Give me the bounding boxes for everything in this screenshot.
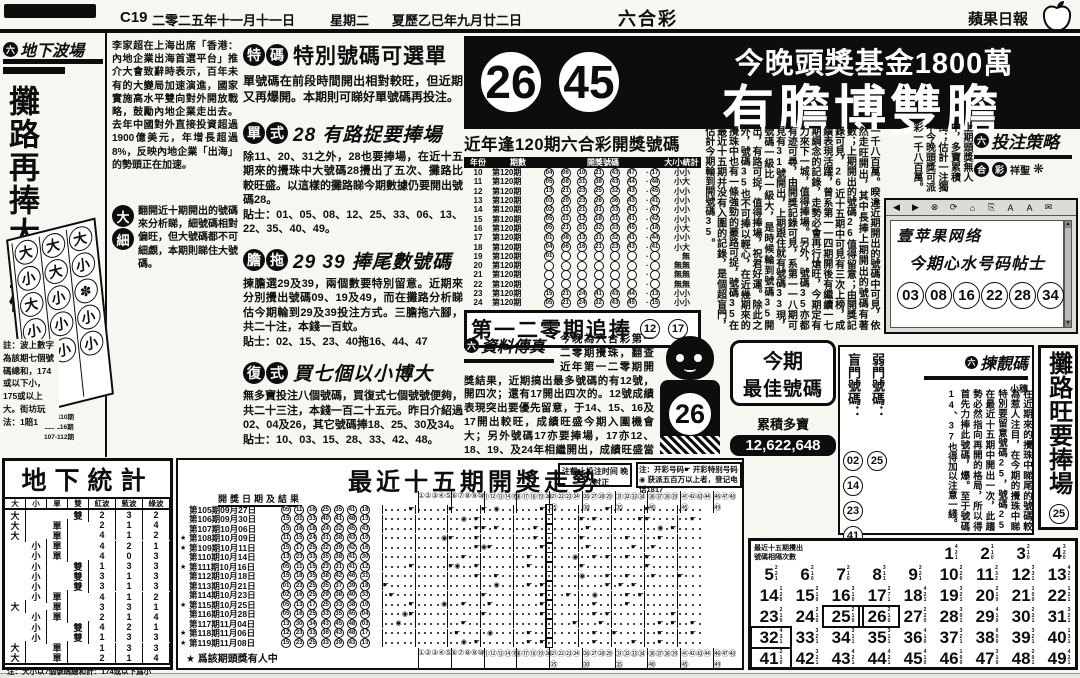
- walk-ball: 01: [281, 581, 291, 591]
- dot-mark: [522, 594, 524, 596]
- dot-mark: [627, 518, 629, 520]
- forward-icon[interactable]: ▶: [907, 201, 924, 214]
- walk-ball: 45: [347, 609, 357, 619]
- freq-count: 210: [847, 566, 850, 583]
- dot-mark: [385, 632, 387, 634]
- dot-mark: [502, 613, 504, 615]
- walk-balls: 05162533354504: [281, 609, 378, 619]
- freq-cell: 21100: [1005, 587, 1041, 604]
- dot-mark: [647, 623, 649, 625]
- multiple-body: 無多寶投注八個號碼，買復式七個號號便夠，共二十三注，本錢一百二十五元。昨日介紹過…: [243, 389, 463, 433]
- board-cell: 大: [40, 231, 66, 261]
- walk-ball: 36: [321, 628, 331, 638]
- banker-body: 揀膽選29及39，兩個數要特別留意。近期來分別攪出號碼09、19及49，而在攤路…: [243, 277, 463, 335]
- dot-mark: [685, 585, 687, 587]
- freq-count: 321: [960, 629, 963, 646]
- freq-number: 15: [796, 587, 815, 604]
- dot-mark: [666, 623, 668, 625]
- walk-special-ball: 33: [360, 590, 370, 600]
- dot-mark: [535, 518, 537, 520]
- dot-mark: [685, 518, 687, 520]
- home-icon[interactable]: ⌂: [964, 201, 981, 214]
- underground-header-cell: 雙: [68, 498, 89, 509]
- walk-ball: 05: [281, 505, 291, 515]
- section-multiple: 復式 買七個以小博大 無多寶投注八個號碼，買復式七個號號便夠，共二十三注，本錢一…: [243, 359, 463, 447]
- dot-mark: [640, 556, 642, 558]
- freq-cell: 38000: [969, 629, 1005, 646]
- dot-mark: [443, 642, 445, 644]
- dot-mark: [666, 547, 668, 549]
- dot-mark: [600, 556, 602, 558]
- dot-mark: [450, 613, 452, 615]
- dot-mark: [614, 613, 616, 615]
- walk-dot-grid: ☛◉☛☛☛☛☛: [382, 600, 703, 609]
- dot-mark: [496, 642, 498, 644]
- dot-mark: [561, 585, 563, 587]
- freq-number: 23: [760, 608, 779, 625]
- walk-ball: 30: [294, 619, 304, 629]
- freq-cell: 2110: [969, 545, 1005, 562]
- dot-mark: [535, 575, 537, 577]
- dot-mark: [509, 585, 511, 587]
- dot-mark: [456, 623, 458, 625]
- dot-mark: [404, 518, 406, 520]
- dot-mark: [418, 528, 420, 530]
- dot-mark: [489, 613, 491, 615]
- dot-mark: [620, 594, 622, 596]
- freq-number: 4: [1052, 545, 1061, 562]
- font-large-icon[interactable]: A: [1002, 201, 1019, 214]
- freq-cell: 29410: [969, 608, 1005, 625]
- dot-mark: [430, 547, 432, 549]
- walk-ball: 05: [281, 562, 291, 572]
- dot-mark: [640, 623, 642, 625]
- dot-mark: [469, 518, 471, 520]
- dot-mark: [672, 642, 674, 644]
- scroll-down-arrow[interactable]: ▼: [1065, 320, 1071, 327]
- dot-mark: [476, 623, 478, 625]
- freq-cell: 5221: [753, 566, 789, 583]
- multiple-badge: 復式: [243, 362, 288, 384]
- freq-number: 38: [976, 629, 995, 646]
- dot-mark: [502, 566, 504, 568]
- walk-ball: 38: [347, 600, 357, 610]
- refresh-icon[interactable]: ⟳: [945, 201, 962, 214]
- dot-mark: [699, 518, 701, 520]
- freq-cell: 11232: [969, 566, 1005, 583]
- dot-mark: [541, 528, 543, 530]
- dot-mark: [535, 613, 537, 615]
- walk-ball: 39: [334, 638, 344, 648]
- dot-mark: [561, 604, 563, 606]
- dot-mark: [568, 518, 570, 520]
- dot-mark: [581, 613, 583, 615]
- dot-mark: [699, 566, 701, 568]
- freq-count: 232: [995, 566, 998, 583]
- dot-mark: [522, 556, 524, 558]
- dot-mark: [437, 566, 439, 568]
- back-icon[interactable]: ◀: [888, 201, 905, 214]
- dot-mark: [653, 509, 655, 511]
- freq-count: 221: [1032, 608, 1035, 625]
- walk-dot-grid: ☛☛◉☛☛☛☛: [382, 572, 703, 581]
- walk-ball: 40: [321, 514, 331, 524]
- dot-mark: [469, 642, 471, 644]
- freq-count: 421: [1068, 566, 1071, 583]
- dot-mark: [653, 537, 655, 539]
- dot-mark: [456, 509, 458, 511]
- dot-mark: [568, 528, 570, 530]
- walk-cell: [696, 581, 703, 590]
- dot-mark: [561, 623, 563, 625]
- walk-balls: 15313340414813: [281, 514, 378, 524]
- dot-mark: [554, 547, 556, 549]
- freq-number: 35: [868, 629, 887, 646]
- dot-mark: [627, 566, 629, 568]
- dot-mark: [469, 613, 471, 615]
- draw120-year: 21: [464, 270, 492, 279]
- underground-row: 大雙232: [5, 510, 170, 520]
- freq-count: 100: [1032, 587, 1035, 604]
- draw120-title: 近年逢120期六合彩開獎號碼: [464, 131, 701, 155]
- dot-mark: [502, 528, 504, 530]
- dot-mark: [653, 604, 655, 606]
- single-tips: 貼士：01、05、08、12、25、33、06、13、22、35、40、49。: [243, 208, 463, 237]
- underground-row: 小單412: [5, 592, 170, 602]
- walk-ball: 25: [307, 638, 317, 648]
- dot-mark: [535, 632, 537, 634]
- dot-mark: [443, 613, 445, 615]
- underground-cell: 1: [116, 520, 143, 530]
- walk-cell: [696, 524, 703, 533]
- underground-row: 小雙133: [5, 632, 170, 642]
- dot-mark: [410, 528, 412, 530]
- freq-count: 220: [960, 566, 963, 583]
- dot-mark: [385, 594, 387, 596]
- dot-mark: [574, 575, 576, 577]
- dot-mark: [685, 556, 687, 558]
- walk-cell: [696, 505, 703, 514]
- walk-special-ball: 10: [360, 533, 370, 543]
- scroll-up-arrow[interactable]: ▲: [1065, 221, 1071, 228]
- dot-mark: [522, 528, 524, 530]
- freq-number: 18: [904, 587, 923, 604]
- dot-mark: [633, 528, 635, 530]
- dot-mark: [614, 509, 616, 511]
- special-title: 特別號碼可選單: [293, 40, 447, 70]
- web-numbers: 03 08 16 22 28 34: [897, 282, 1057, 309]
- freq-cell: 41210: [753, 650, 789, 667]
- dot-mark: [594, 547, 596, 549]
- dot-mark: [418, 547, 420, 549]
- walk-ball: 15: [307, 562, 317, 572]
- walk-ball: 45: [334, 619, 344, 629]
- dot-mark: [561, 537, 563, 539]
- freq-number: 41: [760, 650, 779, 667]
- dot-mark: [568, 566, 570, 568]
- tips-column: 特碼 特別號碼可選單 單號碼在前段時間開出相對較旺，但近期又再爆開。本期則可睇好…: [243, 40, 463, 456]
- walk-star: ★: [180, 601, 189, 609]
- freq-cell: 46100: [933, 650, 969, 667]
- dot-mark: [594, 509, 596, 511]
- underground-cell: 2: [89, 653, 116, 663]
- draw120-year: 17: [464, 233, 492, 242]
- walk-ball: 38: [334, 533, 344, 543]
- freq-number: 20: [976, 587, 995, 604]
- dot-mark: [496, 594, 498, 596]
- dot-mark: [548, 623, 550, 625]
- dot-mark: [489, 537, 491, 539]
- dot-mark: [404, 528, 406, 530]
- dot-mark: [561, 547, 563, 549]
- dot-mark: [581, 623, 583, 625]
- underground-cell: 3: [116, 561, 143, 571]
- dot-mark: [548, 604, 550, 606]
- dot-mark: [554, 613, 556, 615]
- dot-mark: [456, 575, 458, 577]
- dot-mark: [614, 575, 616, 577]
- dot-mark: [397, 556, 399, 558]
- blind-balls: 02 14 23 41: [843, 451, 863, 546]
- stop-icon[interactable]: ⊗: [926, 201, 943, 214]
- mail-icon[interactable]: ✉: [1040, 201, 1057, 214]
- dot-mark: [535, 642, 537, 644]
- dot-mark: [516, 594, 518, 596]
- dot-mark: [548, 594, 550, 596]
- dot-mark: [397, 642, 399, 644]
- walk-ball: 15: [281, 571, 291, 581]
- walk-ball: 33: [321, 609, 331, 619]
- walk-ball: 42: [334, 571, 344, 581]
- walk-special-ball: 13: [360, 638, 370, 648]
- dot-mark: [685, 509, 687, 511]
- blind-ball: 23: [843, 501, 863, 521]
- dot-mark: [548, 547, 550, 549]
- dot-mark: [476, 613, 478, 615]
- dot-mark: [522, 642, 524, 644]
- dot-mark: [516, 518, 518, 520]
- freq-cell: 19321: [933, 587, 969, 604]
- fax-logo-strip: [464, 359, 554, 363]
- walk-note2: 注截止投注时间 晚上7时正: [558, 463, 632, 487]
- single-badge: 單式: [243, 122, 288, 144]
- dot-mark: [554, 642, 556, 644]
- strategy-sub1: 合: [974, 162, 989, 177]
- dot-mark: [666, 604, 668, 606]
- dot-mark: [672, 632, 674, 634]
- strategy-text: 投注策略: [991, 128, 1059, 153]
- dot-mark: [614, 537, 616, 539]
- dot-mark: [647, 585, 649, 587]
- freq-count: 321: [960, 587, 963, 604]
- dot-mark: [620, 556, 622, 558]
- freq-cell: 34311: [825, 629, 861, 646]
- dot-mark: [672, 556, 674, 558]
- dot-mark: [581, 528, 583, 530]
- dot-mark: [424, 566, 426, 568]
- walk-ball: 13: [281, 619, 291, 629]
- freq-count: 311: [852, 629, 855, 646]
- underground-cell: 2: [89, 520, 116, 530]
- underground-cell: 3: [116, 602, 143, 612]
- underground-cell: 4: [143, 612, 170, 622]
- walk-balls: 05111625354118: [281, 505, 378, 515]
- dot-mark: [410, 632, 412, 634]
- dot-mark: [516, 604, 518, 606]
- dot-mark: [410, 585, 412, 587]
- boy-eye-right: [694, 354, 702, 362]
- dot-mark: [672, 604, 674, 606]
- dot-mark: [430, 509, 432, 511]
- dot-mark: [528, 518, 530, 520]
- freq-cell: 28301: [933, 608, 969, 625]
- freq-cell: 7210: [825, 566, 861, 583]
- freq-number: 26: [868, 608, 887, 625]
- dot-mark: [607, 528, 609, 530]
- dot-mark: [659, 575, 661, 577]
- walk-cell: [696, 515, 703, 524]
- dot-mark: [397, 566, 399, 568]
- dot-mark: [679, 594, 681, 596]
- dot-mark: [430, 585, 432, 587]
- dot-mark: [659, 556, 661, 558]
- dot-mark: [679, 613, 681, 615]
- dot-mark: [443, 509, 445, 511]
- dot-mark: [391, 575, 393, 577]
- scrollbar[interactable]: ▲ ▼: [1064, 220, 1072, 328]
- blind-ball: 14: [843, 476, 863, 496]
- dot-mark: [666, 575, 668, 577]
- boy-smile: [684, 366, 696, 372]
- dot-mark: [463, 632, 465, 634]
- dot-mark: [581, 547, 583, 549]
- dot-mark: [391, 509, 393, 511]
- dot-mark: [502, 509, 504, 511]
- freq-count: 201: [1032, 650, 1035, 667]
- font-small-icon[interactable]: A: [1021, 201, 1038, 214]
- dot-mark: [450, 594, 452, 596]
- board-cell: 小: [70, 250, 96, 280]
- walk-ball: 38: [321, 571, 331, 581]
- draw-ball: 24: [577, 298, 587, 308]
- dot-mark: [443, 632, 445, 634]
- dot-mark: [640, 604, 642, 606]
- fax-logo-text: 資料傳真: [481, 333, 545, 357]
- freq-cell: 45410: [897, 650, 933, 667]
- dot-mark: [418, 575, 420, 577]
- dot-mark: [581, 594, 583, 596]
- dot-mark: [568, 585, 570, 587]
- blind-label: 盲門號碼：: [844, 353, 863, 449]
- dot-mark: [620, 575, 622, 577]
- dot-mark: [633, 537, 635, 539]
- draw120-rows: 10第120期040610214347·17小小11第120期050831384…: [464, 168, 701, 307]
- dot-mark: [568, 547, 570, 549]
- freq-number: 19: [940, 587, 959, 604]
- freq-number: 25: [832, 608, 851, 625]
- dot-mark: [627, 632, 629, 634]
- walk-group-label: ①②③④⑤: [418, 648, 451, 670]
- dot-mark: [679, 566, 681, 568]
- dot-mark: [410, 537, 412, 539]
- dot-mark: [456, 642, 458, 644]
- freq-count: 221: [919, 566, 922, 583]
- dot-mark: [574, 518, 576, 520]
- underground-cell: 4: [89, 551, 116, 561]
- freq-number: 37: [940, 629, 959, 646]
- dot-mark: [397, 537, 399, 539]
- dot-mark: [443, 623, 445, 625]
- board-cell: 大: [18, 290, 44, 320]
- dot-mark: [699, 623, 701, 625]
- dot-mark: [554, 594, 556, 596]
- freq-row: 1421211032104320: [753, 543, 1077, 564]
- dot-mark: [627, 509, 629, 511]
- freq-number: 39: [1012, 629, 1031, 646]
- dot-mark: [404, 547, 406, 549]
- dot-mark: [430, 556, 432, 558]
- dot-mark: [456, 613, 458, 615]
- dot-mark: [535, 566, 537, 568]
- freq-count: 220: [924, 608, 927, 625]
- freq-cell: 40131: [1041, 629, 1077, 646]
- dot-mark: [647, 528, 649, 530]
- walk-ball: 02: [281, 590, 291, 600]
- freq-count: 421: [1068, 650, 1071, 667]
- walk-note1: 注：开彩号码☛ 开彩特别号码◉ 获派五百万以上者，登记电话1817: [636, 462, 742, 488]
- dot-mark: [502, 537, 504, 539]
- dot-mark: [535, 585, 537, 587]
- dot-mark: [516, 585, 518, 587]
- freq-cell: 3210: [1005, 545, 1041, 562]
- print-icon[interactable]: ⎘: [983, 201, 1000, 214]
- walk-dot-grid: ☛◉☛☛☛☛☛: [382, 629, 703, 638]
- walk-star: ★: [180, 563, 189, 571]
- web-title: 今期心水号码帖士: [909, 250, 1057, 274]
- dot-mark: [509, 623, 511, 625]
- walk-ball: 35: [321, 552, 331, 562]
- dot-mark: [587, 566, 589, 568]
- walk-ball: 24: [321, 524, 331, 534]
- dot-mark: [404, 623, 406, 625]
- dot-mark: [410, 518, 412, 520]
- dot-mark: [541, 566, 543, 568]
- dot-mark: [469, 585, 471, 587]
- freq-cell: 9221: [897, 566, 933, 583]
- freq-count: 410: [924, 629, 927, 646]
- dot-mark: [594, 575, 596, 577]
- dot-mark: [502, 642, 504, 644]
- dot-mark: [424, 537, 426, 539]
- dot-mark: [443, 594, 445, 596]
- dot-mark: [659, 604, 661, 606]
- dot-mark: [672, 585, 674, 587]
- walk-ball: 16: [294, 590, 304, 600]
- fan-paragraph: 翻開近十期開出的號碼來分析睇，細號碼相對偏旺，但大號碼都不可細覷，本期則睇住大號…: [138, 205, 238, 325]
- dot-mark: [607, 604, 609, 606]
- dot-mark: [627, 547, 629, 549]
- walk-special-ball: 43: [360, 524, 370, 534]
- dot-mark: [640, 613, 642, 615]
- dot-mark: [692, 566, 694, 568]
- dot-mark: [430, 613, 432, 615]
- dot-mark: [600, 566, 602, 568]
- blind-ball: 02: [843, 451, 863, 471]
- banker-title: 29 39 捧尾數號碼: [293, 247, 452, 274]
- walk-cell: [696, 610, 703, 619]
- badge-small: 細: [112, 228, 134, 250]
- dot-mark: [489, 566, 491, 568]
